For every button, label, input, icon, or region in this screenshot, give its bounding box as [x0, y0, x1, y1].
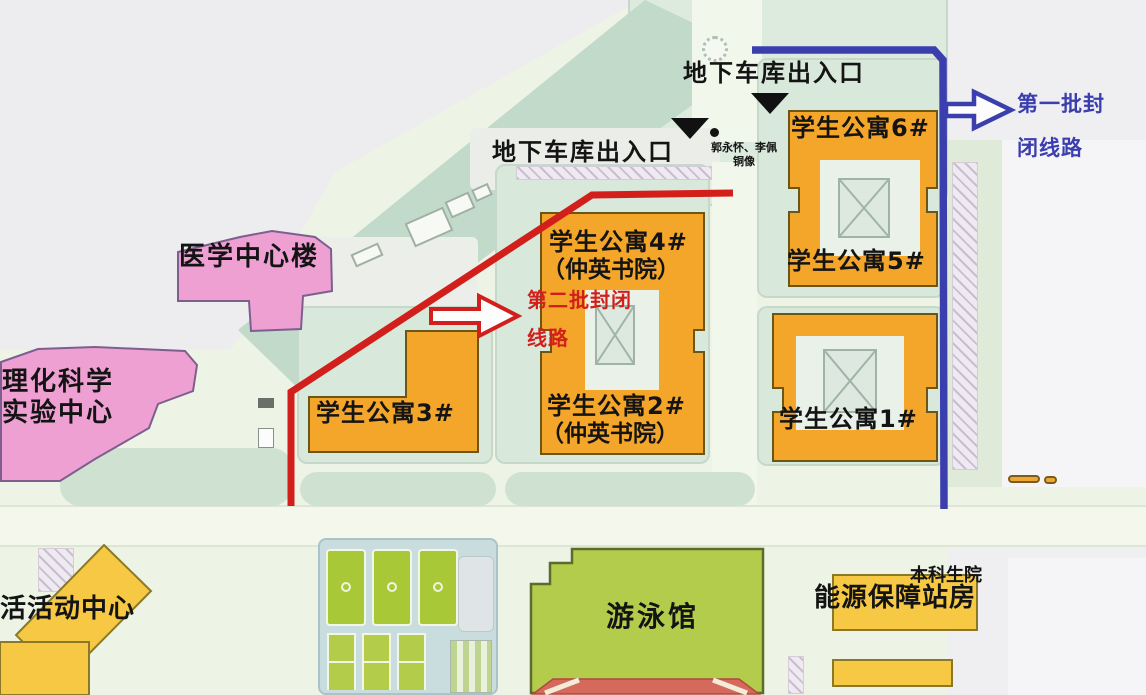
- garage-entrance-triangle-icon-west: [671, 118, 709, 139]
- basketball-court-3: [418, 549, 458, 626]
- label-garage-exit-west: 地下车库出入口: [492, 139, 674, 167]
- parking-hatch-east: [952, 162, 978, 470]
- volleyball-court-2: [362, 633, 391, 690]
- volleyball-court-1: [327, 633, 356, 690]
- east-road-white: [1002, 140, 1146, 488]
- label-apartment-5: 学生公寓5#: [787, 248, 926, 276]
- mid-vertical-road: [712, 162, 757, 505]
- label-apartment-4-line1: 学生公寓4#: [549, 229, 688, 257]
- label-energy-station: 能源保障站房: [814, 584, 976, 614]
- southeast-white-area: [1008, 558, 1146, 695]
- label-apartment-6: 学生公寓6#: [791, 115, 930, 143]
- court-mid-line: [364, 661, 389, 663]
- garage-entrance-triangle-icon: [751, 93, 789, 114]
- green-strip-3: [505, 472, 755, 506]
- block-apartment-1: [757, 306, 945, 466]
- label-apartment-2-line2: （仲英书院）: [541, 421, 679, 447]
- parking-hatch-southwest: [38, 548, 74, 592]
- statue-dot-icon: [710, 128, 719, 137]
- main-east-west-road: [0, 505, 1146, 547]
- campus-map: 地下车库出入口 地下车库出入口 郭永怀、李佩 铜像 学生公寓6# 学生公寓5# …: [0, 0, 1146, 695]
- label-apartment-2-line1: 学生公寓2#: [547, 393, 686, 421]
- label-undergraduate-school: 本科生院: [910, 566, 982, 587]
- roof-stripe-right: [713, 680, 747, 693]
- green-strip-2: [300, 472, 496, 506]
- label-activity-center: 活活动中心: [0, 595, 135, 625]
- pool-entrance-roof: [533, 679, 759, 694]
- label-garage-exit-top: 地下车库出入口: [683, 60, 865, 88]
- label-science-center-line2: 实验中心: [2, 399, 114, 429]
- label-route-second-line2: 线路: [527, 327, 569, 350]
- building-activity-center-annex: [0, 642, 89, 695]
- label-route-second-line1: 第二批封闭: [527, 289, 632, 312]
- label-statues-line2: 铜像: [698, 156, 790, 169]
- roof-stripe-left: [545, 680, 579, 693]
- small-building-dash-1: [1008, 475, 1040, 483]
- parking-hatch-south: [788, 656, 804, 694]
- basketball-court-1: [326, 549, 366, 626]
- court-center-circle: [341, 582, 351, 592]
- label-apartment-4-line2: （仲英书院）: [542, 257, 680, 283]
- gate-structure-1: [258, 398, 274, 408]
- label-medical-center: 医学中心楼: [179, 243, 319, 273]
- green-strip-1: [60, 448, 292, 506]
- striped-structure: [450, 640, 492, 693]
- basketball-court-2: [372, 549, 412, 626]
- label-apartment-1: 学生公寓1#: [779, 406, 918, 434]
- gray-structure: [458, 556, 494, 632]
- parking-hatch-north: [516, 166, 712, 180]
- label-swimming-pool: 游泳馆: [606, 601, 699, 633]
- building-energy-annex: [833, 660, 952, 686]
- label-route-first-line1: 第一批封: [1017, 92, 1105, 116]
- court-mid-line: [399, 661, 424, 663]
- gate-structure-2: [258, 428, 274, 448]
- court-mid-line: [329, 661, 354, 663]
- label-route-first-line2: 闭线路: [1017, 136, 1083, 160]
- small-building-dash-2: [1044, 476, 1057, 484]
- block-apartment-3: [297, 306, 493, 464]
- label-science-center-line1: 理化科学: [2, 368, 114, 398]
- court-center-circle: [433, 582, 443, 592]
- label-statues-line1: 郭永怀、李佩: [698, 142, 790, 155]
- volleyball-court-3: [397, 633, 426, 690]
- label-apartment-3: 学生公寓3#: [316, 400, 455, 428]
- court-center-circle: [387, 582, 397, 592]
